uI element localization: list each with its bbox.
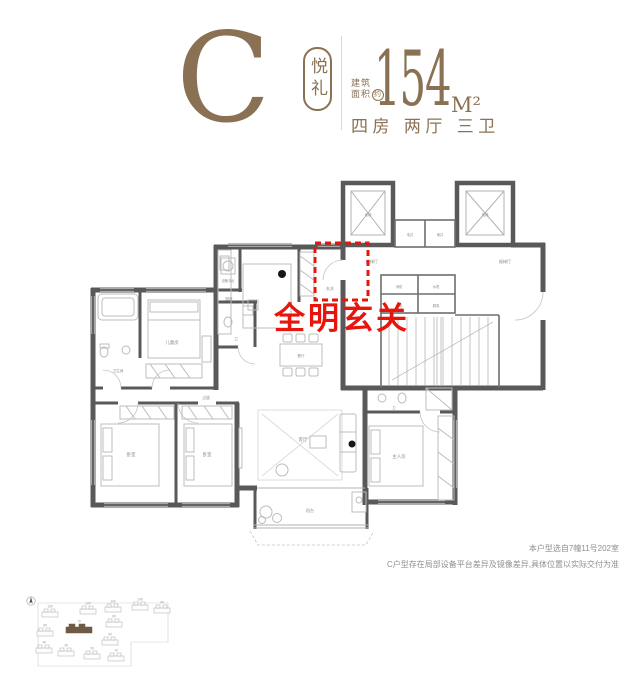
label-foyer: 玄关 bbox=[326, 285, 334, 291]
disclaimer-line-2: C户型存在局部设备平台差异及镜像差异,具体位置以实际交付为准 bbox=[387, 557, 619, 573]
svg-text:3#: 3# bbox=[64, 644, 68, 648]
siteplan-building: 4# bbox=[36, 641, 52, 654]
highlight-label: 全明玄关 bbox=[273, 301, 410, 336]
disclaimer: 本户型选自7幢11号202室 C户型存在局部设备平台差异及镜像差异,具体位置以实… bbox=[387, 541, 619, 572]
siteplan-building: 11# bbox=[105, 600, 121, 613]
siteplan-building: 1# bbox=[108, 649, 124, 662]
compass-icon bbox=[27, 597, 35, 605]
svg-text:1#: 1# bbox=[114, 649, 118, 653]
svg-text:2#: 2# bbox=[90, 647, 94, 651]
svg-text:7#: 7# bbox=[77, 620, 81, 624]
svg-text:13#: 13# bbox=[47, 605, 53, 609]
svg-text:5#: 5# bbox=[108, 633, 112, 637]
svg-text:11#: 11# bbox=[110, 600, 115, 604]
label-util-weak: 弱电 bbox=[433, 303, 440, 308]
label-balcony: 阳台 bbox=[306, 507, 314, 513]
svg-text:4#: 4# bbox=[42, 641, 46, 645]
svg-text:8#: 8# bbox=[43, 624, 47, 628]
label-util-fire: 消防 bbox=[396, 284, 403, 289]
siteplan-building: 12# bbox=[80, 602, 96, 615]
label-bedroom-2: 卧室 bbox=[203, 451, 212, 458]
elevator-left: 电梯 bbox=[351, 191, 385, 235]
siteplan-building: 2# bbox=[84, 647, 100, 660]
siteplan-building: 10# bbox=[132, 598, 148, 611]
label-well-left: 电井 bbox=[407, 232, 413, 237]
label-dining: 餐厅 bbox=[297, 353, 305, 358]
siteplan-building: 9# bbox=[154, 601, 170, 614]
disclaimer-line-1: 本户型选自7幢11号202室 bbox=[387, 541, 619, 557]
siteplan-building-highlighted: 7# bbox=[66, 620, 92, 634]
elevator-right: 电梯 bbox=[466, 191, 504, 235]
svg-text:12#: 12# bbox=[85, 602, 91, 606]
label-bath-left: 卫生间 bbox=[113, 368, 124, 373]
floor-lamp-dot bbox=[349, 441, 356, 448]
svg-text:6#: 6# bbox=[112, 615, 116, 619]
siteplan-building: 6# bbox=[106, 615, 122, 628]
label-kids-room: 儿童房 bbox=[165, 339, 179, 346]
siteplan-building: 3# bbox=[58, 644, 74, 657]
label-bedroom-1: 卧室 bbox=[127, 451, 136, 458]
svg-text:10#: 10# bbox=[137, 598, 143, 602]
label-living: 客厅 bbox=[299, 436, 308, 443]
label-bath-master: 卫 bbox=[392, 406, 396, 410]
label-bath-mid: 卫 bbox=[234, 337, 238, 341]
label-kitchen: 厨房 bbox=[225, 296, 233, 301]
siteplan-building: 13# bbox=[42, 605, 58, 618]
label-util-water: 水表 bbox=[433, 284, 440, 289]
label-well-right: 管井 bbox=[437, 232, 443, 237]
elevator-right-label: 电梯 bbox=[482, 212, 489, 217]
floorplan-svg: 电梯 电梯 bbox=[0, 0, 640, 677]
room-labels: 设备平台 卫生间 儿童房 厨房 玄关 餐厅 客厅 卧室 卧室 主人房 卫 卫 阳… bbox=[113, 232, 512, 513]
label-corridor: 过道 bbox=[202, 395, 210, 400]
cooktop-dot bbox=[278, 270, 286, 278]
siteplan-building: 5# bbox=[102, 633, 118, 646]
label-equip: 设备平台 bbox=[222, 278, 235, 283]
elevator-left-label: 电梯 bbox=[365, 212, 372, 217]
site-plan: 13# 12# 11# 10# 9# 8# 7# 6# 5# 4# bbox=[27, 597, 170, 666]
label-master: 主人房 bbox=[392, 453, 406, 460]
label-lobby-right: 候梯厅 bbox=[499, 258, 512, 265]
siteplan-building: 8# bbox=[37, 624, 53, 637]
svg-text:9#: 9# bbox=[160, 601, 164, 605]
